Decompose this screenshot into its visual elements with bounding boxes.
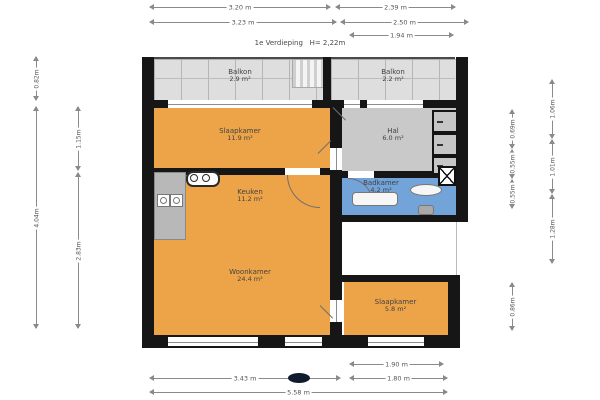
dim-left-outer-main: 4.04m [36,107,37,328]
dim-bottom-left-2: 3.43 m [150,378,340,379]
dim-label: 1.06m [550,97,557,120]
dim-top-left-2: 3.23 m [150,22,336,23]
room-area: 4.2 m² [346,187,416,195]
balcony-hatch-area [292,59,325,88]
room-area: 11.2 m² [205,196,295,204]
room-area: 11.9 m² [190,135,290,143]
dim-label: 2.39 m [382,4,409,12]
dim-top-right-2: 2.50 m [341,22,468,23]
dim-label: 1.94 m [388,32,415,40]
room-label-hal: Hal 6.0 m² [343,127,443,143]
room-area: 5.8 m² [348,306,443,314]
kitchen-sink-icon [157,194,170,207]
dim-bottom-full: 5.58 m [150,392,447,393]
dim-right-inner-2: 0.55m [512,150,513,178]
dim-label: 0.86m [510,295,517,318]
toilet-icon [418,205,434,215]
north-marker-icon [288,373,310,383]
wall-balcony-divider [323,57,331,100]
window-woonkamer-2 [285,337,322,346]
dim-label: 5.58 m [285,389,312,397]
dim-right-inner-low: 0.86m [512,283,513,330]
dim-bottom-right-1: 1.90 m [350,364,443,365]
void-edge-line [456,222,457,275]
kitchen-sink-icon [170,194,183,207]
plan-title: 1e Verdieping H= 2,22m [225,39,375,47]
dim-right-outer-3: 1.28m [552,195,553,263]
dim-label: 2.50 m [391,19,418,27]
room-area: 24.4 m² [195,276,305,284]
dim-label: 2.83m [76,239,83,262]
balcony-top-rail [154,57,455,59]
room-label-woonkamer: Woonkamer 24.4 m² [195,268,305,284]
burner-icon [202,174,210,182]
room-label-balkon-left: Balkon 2.9 m² [190,68,290,84]
burner-icon [190,174,198,182]
room-area: 2.9 m² [190,76,290,84]
window-woonkamer-1 [168,337,258,346]
dim-label: 3.43 m [232,375,259,383]
dim-label: 0.82m [34,67,41,90]
dim-left-inner-main: 2.83m [78,173,79,328]
dim-right-inner-3: 0.55m [512,180,513,208]
dim-bottom-right-2: 1.80 m [350,378,447,379]
room-label-slaapkamer2: Slaapkamer 5.8 m² [348,298,443,314]
window-balcony-left [168,100,312,108]
dim-label: 0.55m [510,152,517,175]
door-opening-slaapkamer-hal [330,148,342,170]
dim-label: 3.20 m [227,4,254,12]
wall-badkamer-south [342,215,456,222]
window-slaapkamer2 [368,337,424,346]
room-label-keuken: Keuken 11.2 m² [205,188,295,204]
wall-slaapkamer2-north [342,275,460,282]
window-balcony-right [367,100,423,108]
dim-top-right-3: 1.94 m [350,35,453,36]
dim-label: 1.15m [76,127,83,150]
dim-label: 1.28m [550,217,557,240]
room-label-badkamer: Badkamer 4.2 m² [346,179,416,195]
shaft-icon [438,166,456,186]
door-opening-hal-balcony [344,100,360,108]
dim-label: 0.69m [510,117,517,140]
dim-label: 4.04m [34,206,41,229]
floorplan-canvas: 3.20 m 2.39 m 3.23 m 2.50 m 1.94 m 1e Ve… [0,0,600,400]
dim-label: 1.90 m [383,361,410,369]
dim-label: 0.55m [510,182,517,205]
dim-top-left-1: 3.20 m [150,7,330,8]
room-area: 6.0 m² [343,135,443,143]
dim-label: 1.80 m [385,375,412,383]
dim-right-outer-2: 1.01m [552,140,553,193]
dim-right-inner-1: 0.69m [512,110,513,148]
door-opening-keuken [285,168,320,175]
dim-left-inner-top: 1.15m [78,107,79,170]
room-area: 2.2 m² [343,76,443,84]
room-label-slaapkamer1: Slaapkamer 11.9 m² [190,127,290,143]
dim-right-outer-1: 1.06m [552,80,553,138]
dim-top-right-1: 2.39 m [336,7,455,8]
dim-label: 3.23 m [230,19,257,27]
dim-left-outer-top: 0.82m [36,57,37,100]
room-label-balkon-right: Balkon 2.2 m² [343,68,443,84]
dim-label: 1.01m [550,155,557,178]
door-opening-badkamer [348,171,374,178]
